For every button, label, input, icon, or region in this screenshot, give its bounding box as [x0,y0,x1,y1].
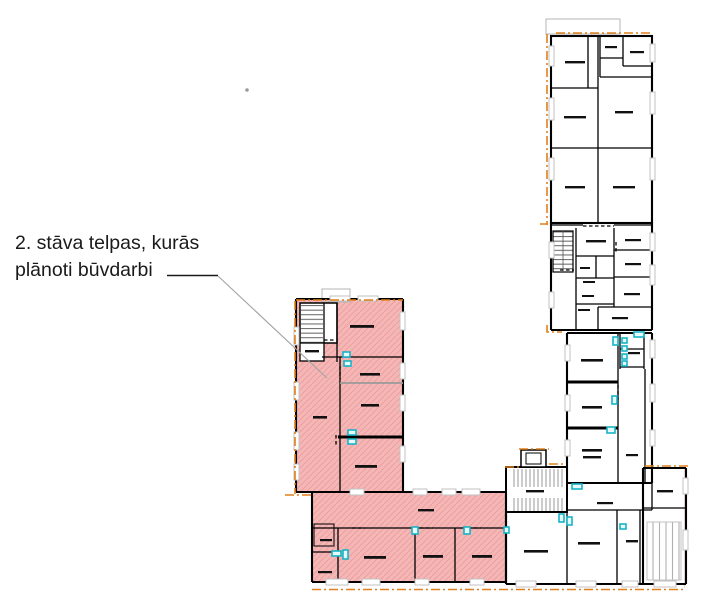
stairwell-upper-wing [553,231,573,272]
reference-lines [652,36,685,588]
annotation-line-1: 2. stāva telpas, kurās [15,232,200,254]
print-speck [245,88,249,92]
floor-plan-drawing: 2. stāva telpas, kurās plānoti būvdarbi [0,0,705,611]
balcony-railing [546,19,620,34]
annotation: 2. stāva telpas, kurās plānoti būvdarbi [15,232,327,378]
floor-plan-figure: 2. stāva telpas, kurās plānoti būvdarbi [0,0,705,611]
bottom-wing-white [506,430,686,584]
upper-wing [546,19,652,483]
annotation-line-2: plānoti būvdarbi [15,259,153,281]
ramp-hatch [647,522,681,580]
entrance-stair-hall [506,450,567,512]
